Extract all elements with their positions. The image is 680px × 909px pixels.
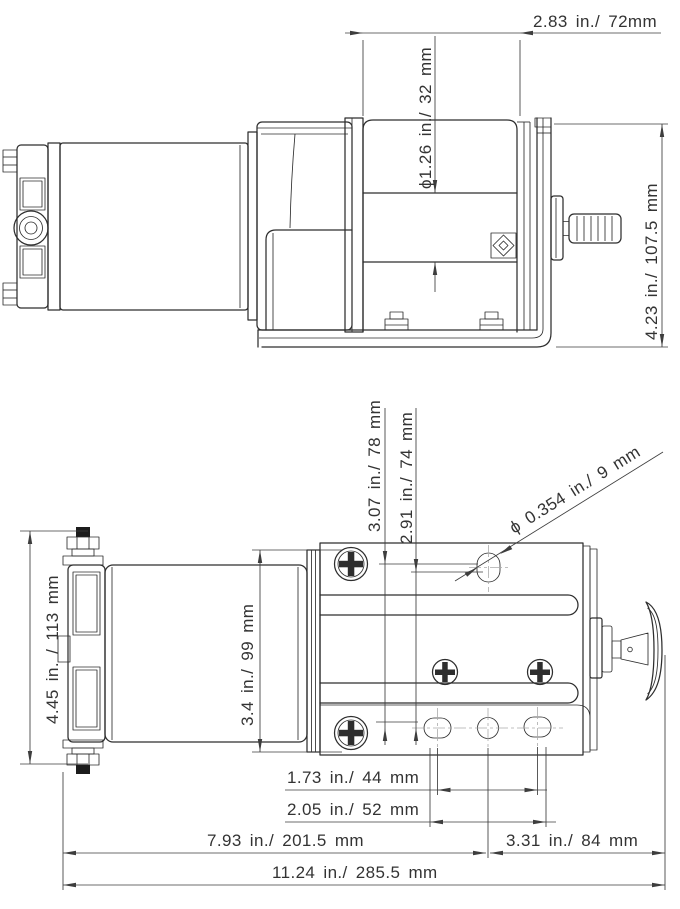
gearbox-side (248, 122, 352, 330)
motor-side (3, 143, 248, 310)
dim-label-drum-diameter: ϕ1.26 in./ 32 mm (416, 47, 435, 189)
drawing-sheet: 2.83 in./ 72mm ϕ1.26 in./ 32 mm 4.23 in.… (0, 0, 680, 909)
dim-drum-diameter: ϕ1.26 in./ 32 mm (416, 36, 437, 292)
dim-label-drum-width: 2.83 in./ 72mm (533, 12, 657, 31)
top-view: 4.45 in. / 113 mm 3.4 in./ 99 mm 3.07 in… (20, 400, 665, 890)
drawing-canvas: 2.83 in./ 72mm ϕ1.26 in./ 32 mm 4.23 in.… (0, 0, 680, 909)
dim-label-motor-diameter: 4.45 in. / 113 mm (43, 575, 62, 724)
dim-label-mount-hole-diameter: ϕ 0.354 in./ 9 mm (506, 442, 644, 537)
dim-overall-height: 4.23 in./ 107.5 mm (554, 124, 668, 347)
drum-side (345, 118, 530, 332)
dim-label-center-to-right: 3.31 in./ 84 mm (506, 831, 638, 850)
dim-label-overall-length: 11.24 in./ 285.5 mm (272, 863, 438, 882)
gearbox-top (307, 550, 320, 752)
dim-label-slot-spacing: 1.73 in./ 44 mm (287, 768, 419, 787)
dim-label-housing-width: 3.4 in./ 99 mm (238, 604, 257, 726)
terminal-stud-bottom (63, 740, 103, 774)
square-bolt-head (491, 233, 516, 258)
clutch-handle (590, 602, 662, 700)
dim-motor-diameter: 4.45 in. / 113 mm (20, 531, 88, 764)
dim-label-overall-height: 4.23 in./ 107.5 mm (642, 183, 661, 340)
tie-bar-upper (320, 595, 578, 615)
dim-label-hole-offset-b: 2.91 in./ 74 mm (397, 412, 416, 544)
side-view: 2.83 in./ 72mm ϕ1.26 in./ 32 mm 4.23 in.… (3, 12, 668, 347)
tie-bar-lower (320, 683, 578, 703)
dim-label-slot-outer: 2.05 in./ 52 mm (287, 800, 419, 819)
screw-bottom-left (335, 717, 368, 750)
screw-mid-right (528, 660, 553, 685)
dim-slot-spacing: 1.73 in./ 44 mm (285, 747, 547, 795)
screw-mid-left (433, 660, 458, 685)
dim-drum-width: 2.83 in./ 72mm (345, 12, 661, 116)
mount-bracket-side (258, 118, 551, 347)
dim-label-hole-offset-a: 3.07 in./ 78 mm (365, 400, 384, 532)
clutch-shaft-side (551, 196, 621, 260)
dim-label-left-to-center: 7.93 in./ 201.5 mm (207, 831, 364, 850)
screw-top-left (335, 548, 368, 581)
dim-hole-offsets: 3.07 in./ 78 mm 2.91 in./ 74 mm (365, 400, 483, 745)
frame-top (320, 543, 597, 755)
dim-slot-outer: 2.05 in./ 52 mm (285, 747, 556, 827)
drum-feet (385, 312, 503, 330)
dim-housing-width: 3.4 in./ 99 mm (238, 550, 342, 752)
motor-top (58, 527, 307, 774)
dim-overall-length: 11.24 in./ 285.5 mm (63, 863, 665, 887)
terminal-stud-top (63, 527, 103, 565)
dim-mount-hole-diameter: ϕ 0.354 in./ 9 mm (455, 442, 663, 581)
